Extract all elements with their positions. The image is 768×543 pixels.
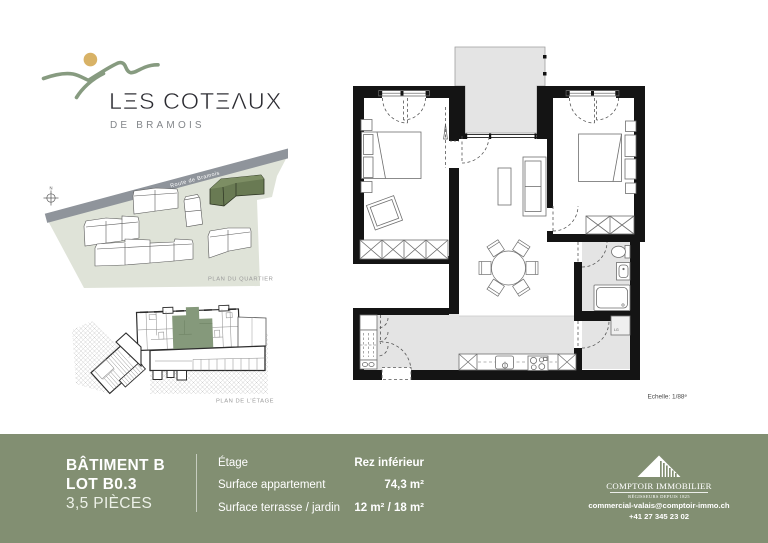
svg-text:Echelle: 1/88e: Echelle: 1/88e — [648, 393, 688, 401]
svg-text:N: N — [49, 186, 52, 191]
svg-text:PLAN DU QUARTIER: PLAN DU QUARTIER — [208, 277, 273, 283]
svg-text:PLAN DE L’ÉTAGE: PLAN DE L’ÉTAGE — [216, 398, 274, 405]
svg-text:LG: LG — [614, 328, 619, 332]
